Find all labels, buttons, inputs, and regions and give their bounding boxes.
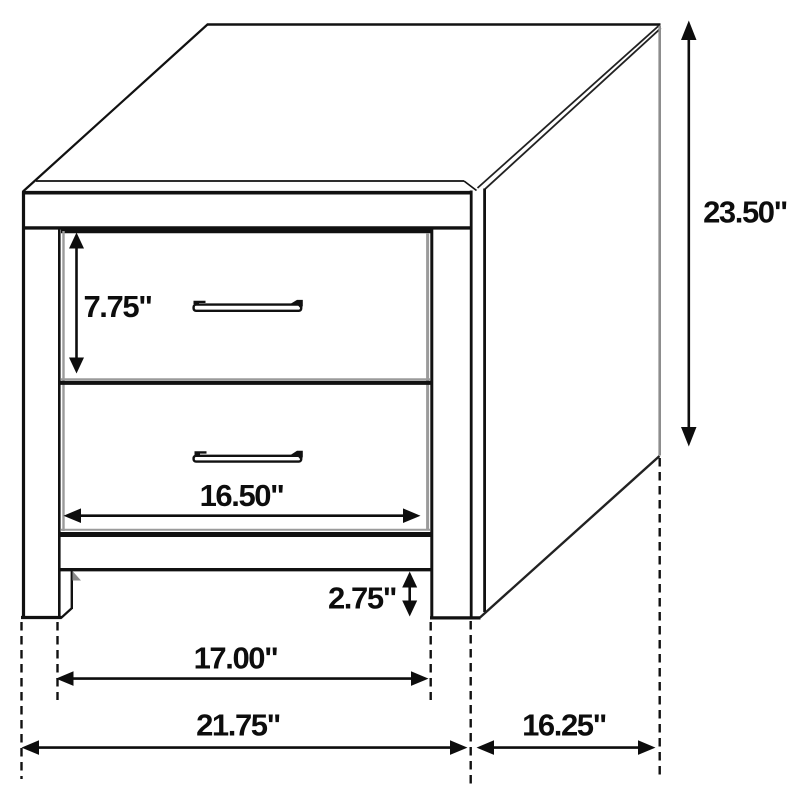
svg-text:23.50": 23.50": [703, 195, 787, 230]
svg-text:2.75": 2.75": [328, 581, 396, 616]
svg-text:16.50": 16.50": [200, 478, 284, 513]
svg-text:16.25": 16.25": [522, 708, 606, 743]
svg-text:17.00": 17.00": [194, 641, 278, 676]
svg-text:7.75": 7.75": [83, 289, 151, 324]
svg-text:21.75": 21.75": [196, 708, 280, 743]
